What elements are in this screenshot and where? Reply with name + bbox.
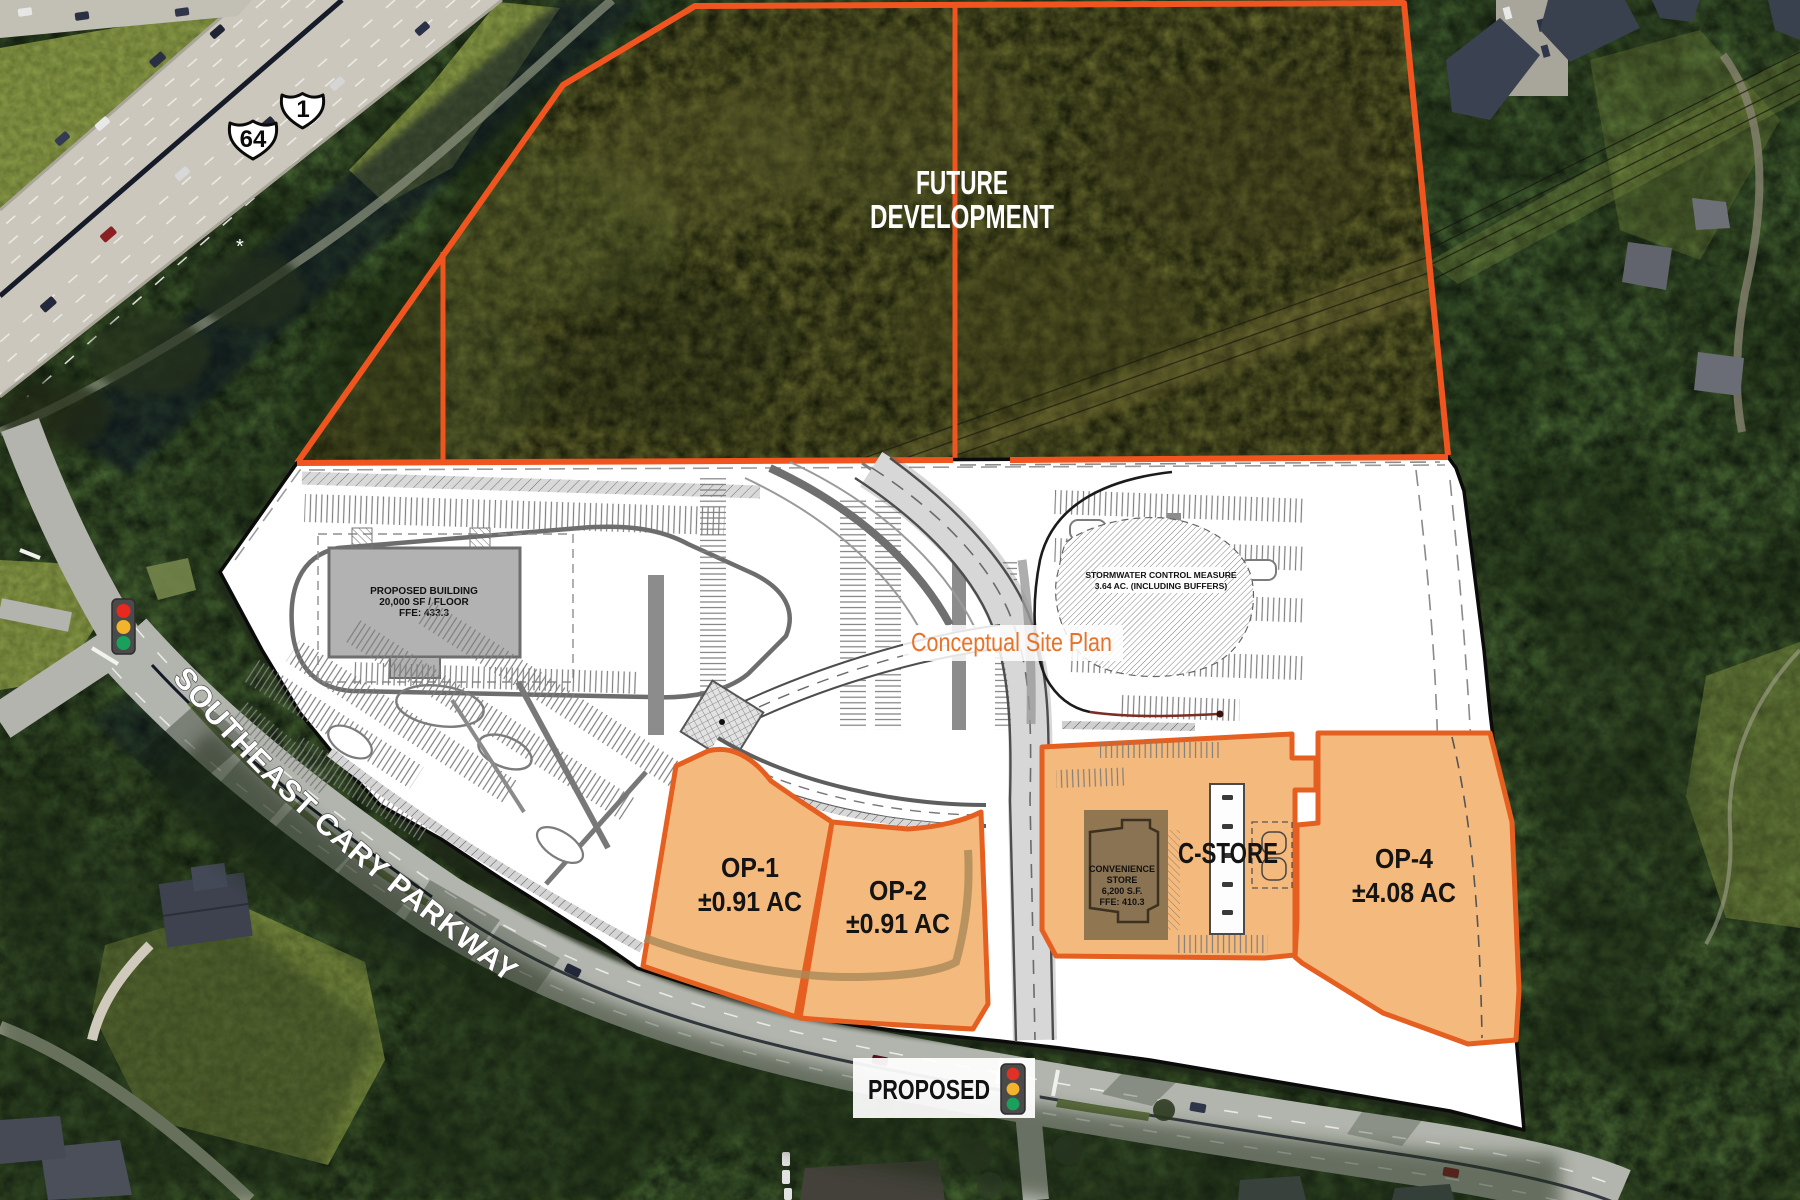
svg-text:3.64 AC. (INCLUDING BUFFERS): 3.64 AC. (INCLUDING BUFFERS) xyxy=(1095,581,1228,591)
svg-text:±0.91 AC: ±0.91 AC xyxy=(846,908,950,939)
svg-text:PROPOSED: PROPOSED xyxy=(868,1074,990,1105)
svg-text:±0.91 AC: ±0.91 AC xyxy=(698,886,802,917)
svg-text:OP-1: OP-1 xyxy=(721,852,779,883)
svg-text:*: * xyxy=(236,236,244,258)
svg-text:DEVELOPMENT: DEVELOPMENT xyxy=(870,198,1054,235)
svg-text:OP-4: OP-4 xyxy=(1375,843,1433,874)
svg-text:STORE: STORE xyxy=(1107,875,1138,885)
svg-text:±4.08 AC: ±4.08 AC xyxy=(1352,877,1456,908)
svg-text:OP-2: OP-2 xyxy=(869,875,927,906)
svg-text:20,000 SF / FLOOR: 20,000 SF / FLOOR xyxy=(379,597,469,608)
svg-text:64: 64 xyxy=(240,126,267,153)
svg-text:FUTURE: FUTURE xyxy=(916,164,1008,201)
svg-text:CONVENIENCE: CONVENIENCE xyxy=(1089,864,1155,874)
svg-text:PROPOSED BUILDING: PROPOSED BUILDING xyxy=(370,586,478,597)
svg-text:STORMWATER CONTROL MEASURE: STORMWATER CONTROL MEASURE xyxy=(1085,570,1237,580)
svg-text:6,200 S.F.: 6,200 S.F. xyxy=(1102,886,1143,896)
svg-text:1: 1 xyxy=(296,96,309,123)
svg-text:FFE: 410.3: FFE: 410.3 xyxy=(1099,897,1144,907)
svg-text:C-STORE: C-STORE xyxy=(1178,838,1278,870)
svg-text:Conceptual Site Plan: Conceptual Site Plan xyxy=(911,627,1112,657)
